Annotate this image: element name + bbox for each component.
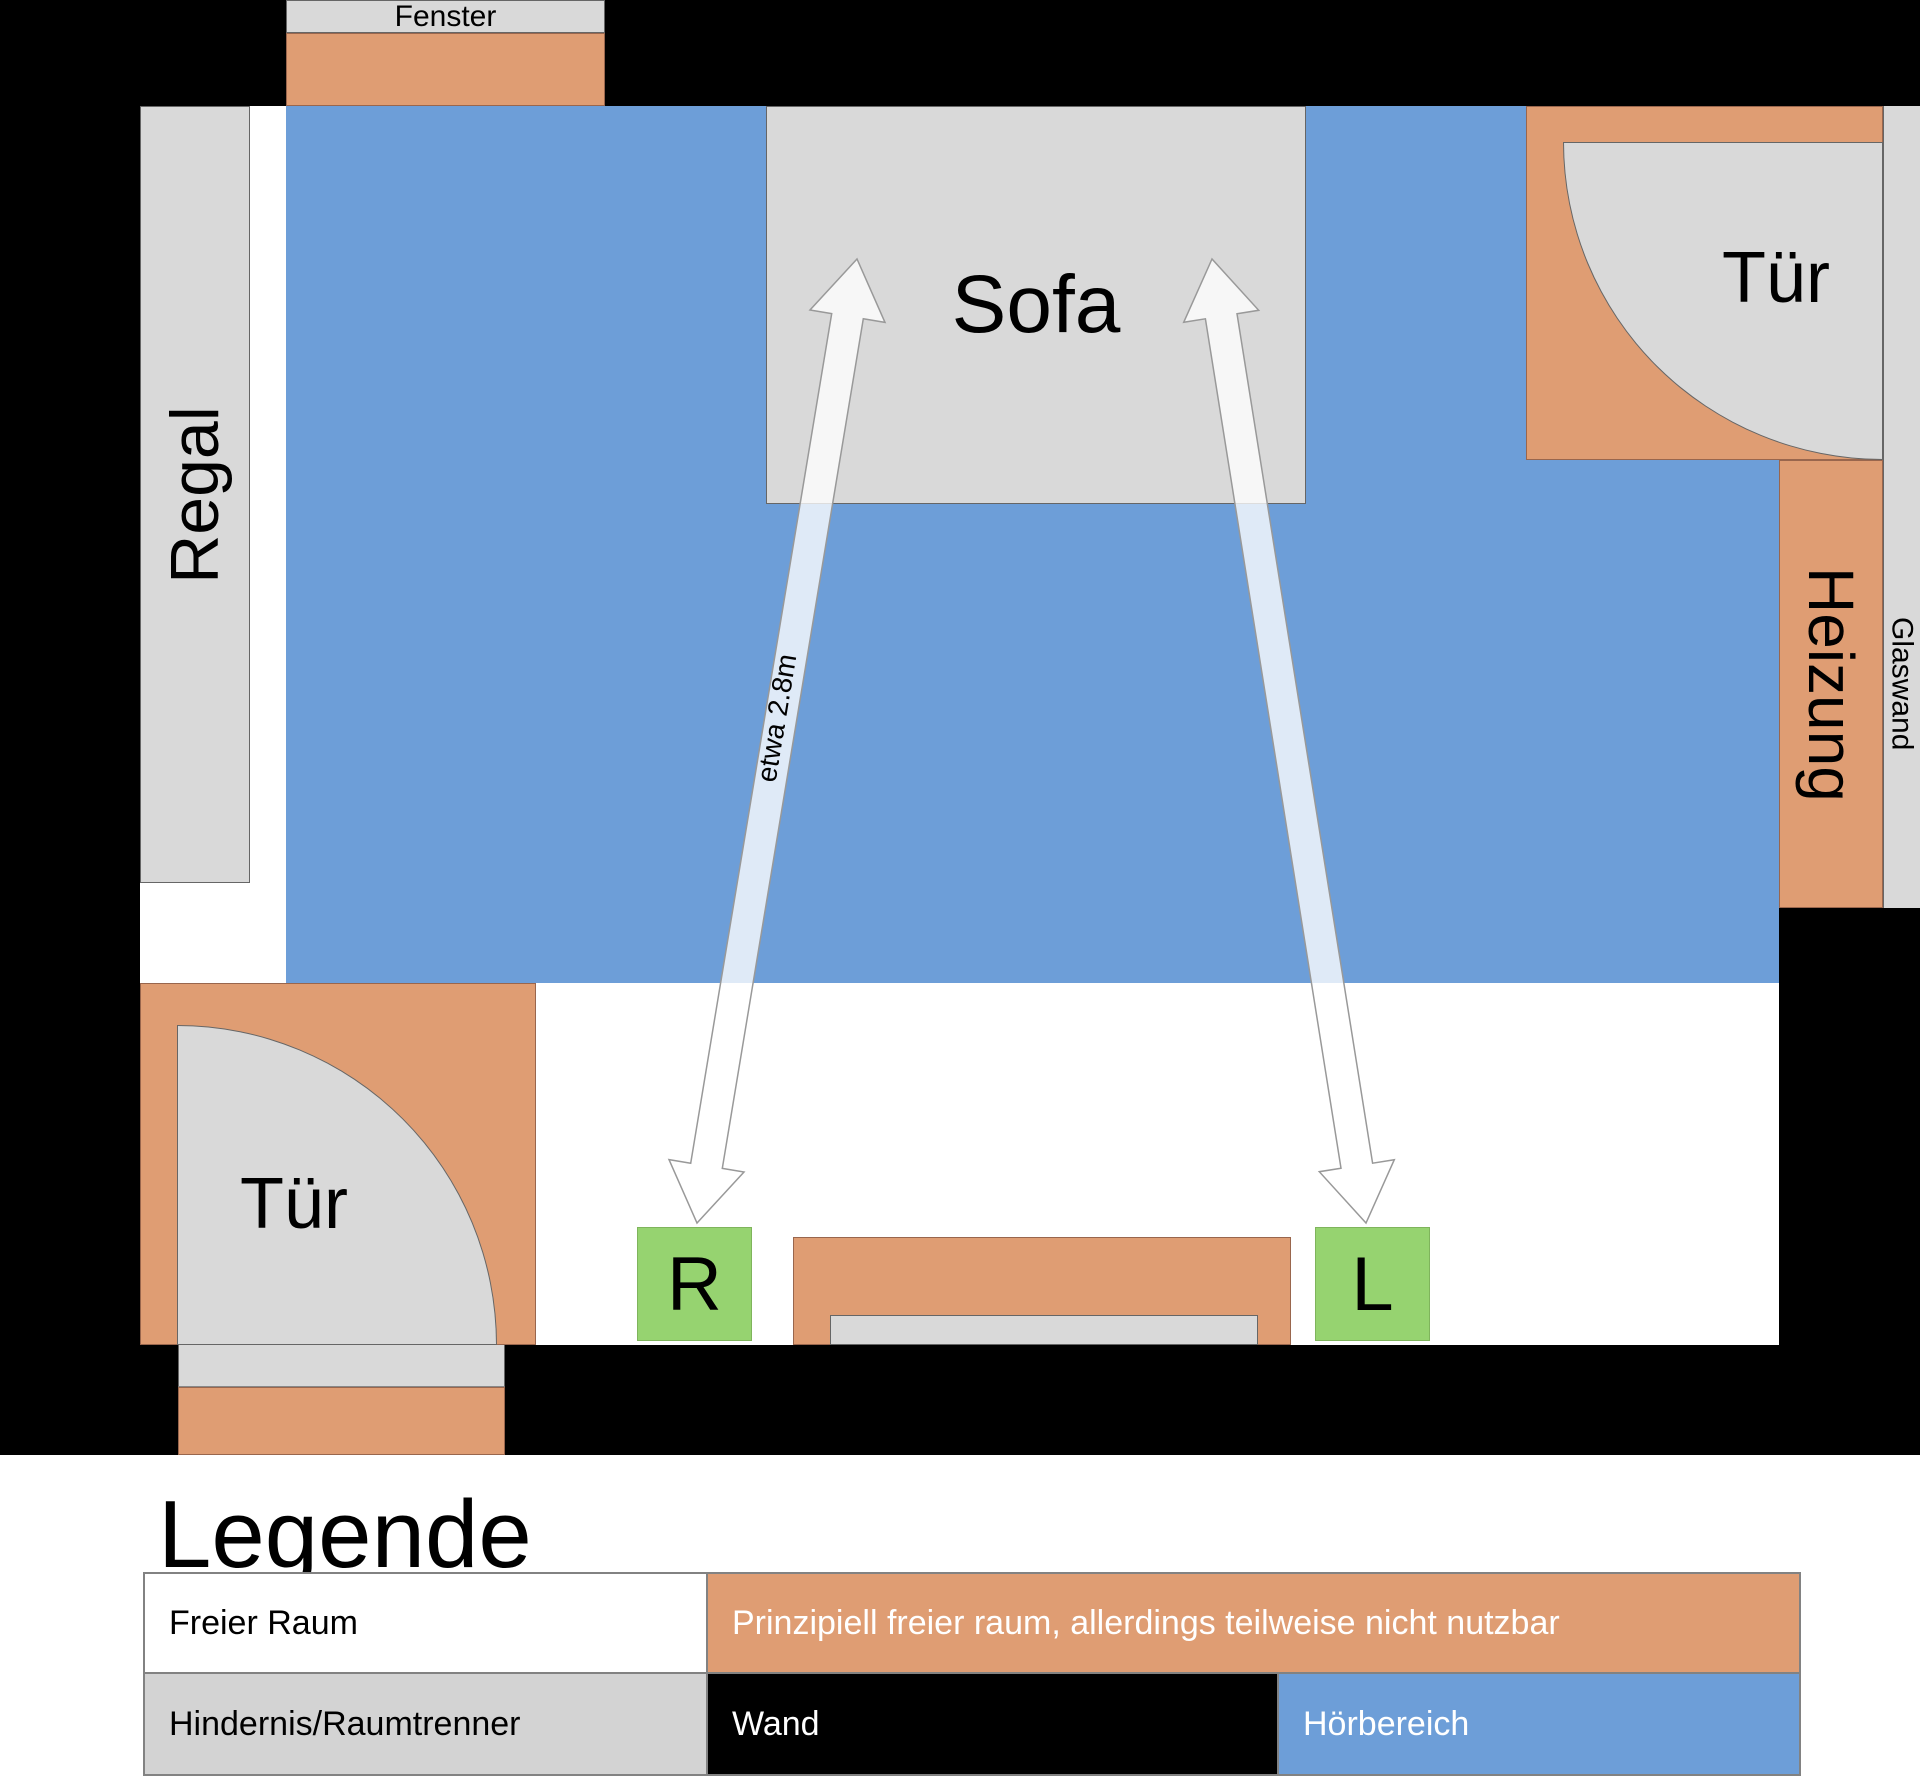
heater: Heizung (1779, 460, 1883, 908)
legend-label-freier-raum: Freier Raum (169, 1604, 358, 1643)
legend-label-prinzipiell-frei: Prinzipiell freier raum, allerdings teil… (732, 1604, 1560, 1643)
door-threshold-leaf (178, 1345, 505, 1387)
shelf: Regal (140, 106, 250, 883)
wall-left (0, 0, 140, 1455)
speaker-left-label: L (1351, 1241, 1393, 1328)
door-threshold-free-area (178, 1387, 505, 1455)
speaker-right: R (637, 1227, 752, 1341)
legend-label-hindernis: Hindernis/Raumtrenner (169, 1705, 521, 1744)
listening-area-right-extension (1526, 460, 1779, 983)
window-sill (286, 33, 605, 106)
legend-cell-hoerbereich: Hörbereich (1277, 1672, 1801, 1776)
speaker-right-label: R (667, 1241, 722, 1328)
door-top-right-label: Tür (1722, 237, 1830, 319)
speaker-left: L (1315, 1227, 1430, 1341)
heater-label: Heizung (1794, 567, 1868, 802)
legend-cell-prinzipiell-frei: Prinzipiell freier raum, allerdings teil… (706, 1572, 1801, 1674)
window-label-box: Fenster (286, 0, 605, 33)
legend-label-wand: Wand (732, 1705, 820, 1744)
door-bottom-left-label: Tür (240, 1163, 348, 1245)
glass-wall-label: Glaswand (1885, 617, 1919, 750)
legend-cell-hindernis: Hindernis/Raumtrenner (143, 1672, 708, 1776)
sofa-label: Sofa (952, 258, 1121, 352)
wall-right-block (1779, 908, 1920, 1345)
tv-board-inner (830, 1315, 1258, 1345)
shelf-label: Regal (156, 406, 234, 584)
window-label: Fenster (395, 0, 497, 34)
glass-wall-label-area: Glaswand (1883, 460, 1920, 908)
legend-cell-freier-raum: Freier Raum (143, 1572, 708, 1674)
sofa: Sofa (766, 106, 1306, 504)
floorplan-canvas: Fenster Regal Sofa Tür Heizung Glaswand … (0, 0, 1920, 1777)
legend-label-hoerbereich: Hörbereich (1303, 1705, 1469, 1744)
legend-cell-wand: Wand (706, 1672, 1279, 1776)
